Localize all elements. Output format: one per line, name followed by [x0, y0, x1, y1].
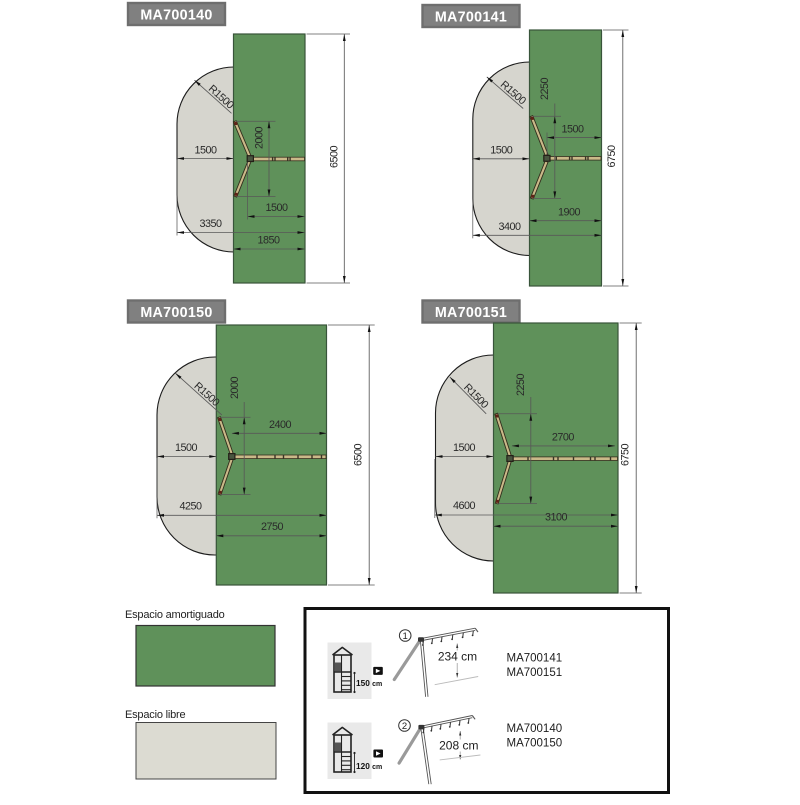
svg-text:2750: 2750: [261, 521, 284, 533]
svg-text:MA700141: MA700141: [507, 652, 563, 664]
svg-text:4250: 4250: [179, 501, 202, 513]
svg-text:MA700140: MA700140: [140, 8, 212, 24]
svg-text:1850: 1850: [257, 235, 280, 247]
svg-text:MA700151: MA700151: [435, 305, 507, 321]
svg-text:3350: 3350: [199, 218, 222, 230]
svg-text:1500: 1500: [175, 442, 198, 454]
svg-text:6500: 6500: [353, 444, 365, 467]
svg-text:6750: 6750: [606, 145, 618, 168]
svg-text:234 cm: 234 cm: [438, 650, 477, 664]
svg-text:4600: 4600: [453, 500, 476, 512]
svg-text:Espacio libre: Espacio libre: [125, 709, 185, 721]
svg-text:3400: 3400: [498, 221, 521, 233]
svg-text:208 cm: 208 cm: [439, 739, 478, 753]
svg-text:1900: 1900: [558, 206, 581, 218]
svg-text:2: 2: [402, 721, 407, 732]
svg-text:1500: 1500: [490, 145, 513, 157]
svg-text:2000: 2000: [229, 377, 241, 400]
svg-text:1500: 1500: [453, 442, 476, 454]
svg-text:MA700150: MA700150: [140, 305, 212, 321]
svg-text:MA700150: MA700150: [507, 738, 563, 750]
svg-text:MA700140: MA700140: [507, 723, 563, 735]
svg-text:2400: 2400: [269, 419, 292, 431]
svg-text:2250: 2250: [539, 78, 551, 101]
svg-text:1500: 1500: [194, 144, 217, 156]
svg-text:1: 1: [403, 631, 408, 642]
svg-text:Espacio amortiguado: Espacio amortiguado: [125, 609, 225, 621]
svg-text:MA700151: MA700151: [507, 667, 563, 679]
svg-text:1500: 1500: [561, 124, 584, 136]
svg-text:3100: 3100: [545, 511, 568, 523]
svg-text:6750: 6750: [620, 444, 632, 467]
svg-text:2000: 2000: [253, 127, 265, 150]
svg-text:1500: 1500: [265, 202, 288, 214]
svg-text:6500: 6500: [328, 146, 340, 169]
svg-text:2700: 2700: [552, 431, 575, 443]
svg-text:MA700141: MA700141: [435, 10, 507, 26]
svg-text:2250: 2250: [515, 374, 527, 397]
